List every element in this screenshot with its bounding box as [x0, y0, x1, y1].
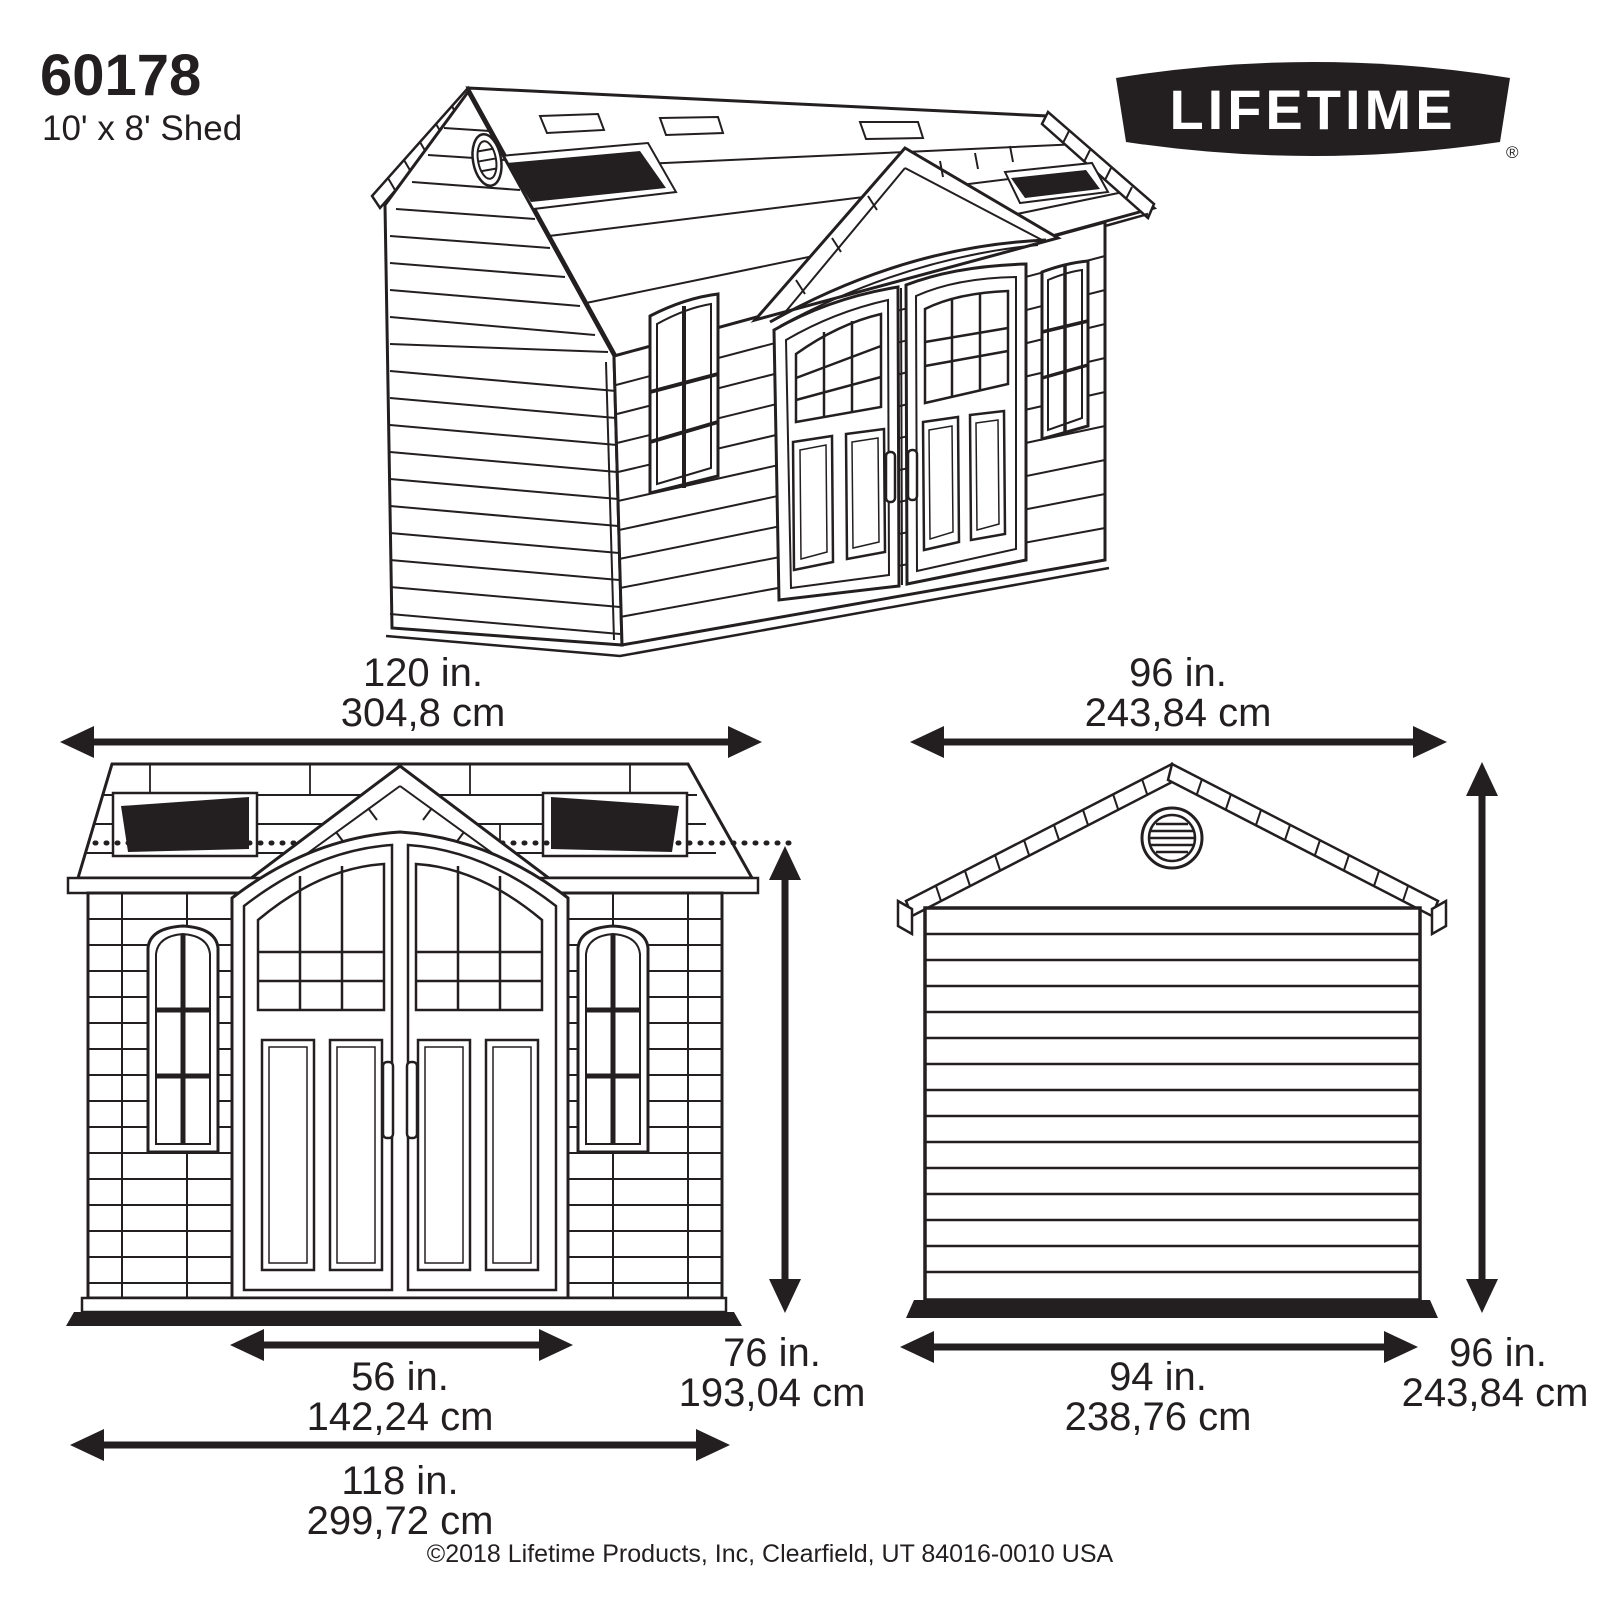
skylight-right-front [543, 793, 687, 856]
label-base-depth-in: 94 in. [1109, 1355, 1207, 1399]
label-door-width-in: 56 in. [351, 1355, 449, 1399]
skylight-left-front [113, 793, 257, 856]
door-handle-left-icon [886, 452, 895, 502]
door-handle-right-icon [908, 450, 917, 500]
part-number: 60178 [40, 43, 201, 108]
round-vent-icon [1142, 808, 1202, 868]
front-window-left-3d [650, 294, 718, 493]
label-overall-height-cm: 243,84 cm [1402, 1371, 1589, 1415]
side-elevation [898, 764, 1446, 1318]
dim-arrow-wall-height [769, 846, 801, 1313]
product-size: 10' x 8' Shed [42, 109, 242, 148]
registered-mark-icon: ® [1506, 143, 1519, 162]
lifetime-logo: LIFETIME ® [1116, 62, 1519, 162]
label-door-width-cm: 142,24 cm [307, 1395, 494, 1439]
shed-3d-view [372, 88, 1154, 656]
label-base-depth-cm: 238,76 cm [1065, 1395, 1252, 1439]
label-overall-depth-cm: 243,84 cm [1085, 691, 1272, 735]
front-window-right-3d [1042, 261, 1088, 439]
label-base-width-in: 118 in. [341, 1459, 458, 1503]
label-wall-height-cm: 193,04 cm [679, 1371, 866, 1415]
label-overall-width-cm: 304,8 cm [341, 691, 506, 735]
front-elevation [66, 764, 798, 1326]
label-overall-width-in: 120 in. [363, 651, 483, 695]
label-wall-height-in: 76 in. [723, 1331, 821, 1375]
side-window-right-front [578, 926, 648, 1152]
label-base-width-cm: 299,72 cm [307, 1499, 494, 1543]
copyright-line: ©2018 Lifetime Products, Inc, Clearfield… [427, 1540, 1114, 1568]
double-doors-front [232, 832, 568, 1298]
label-overall-depth-in: 96 in. [1129, 651, 1227, 695]
label-overall-height-in: 96 in. [1449, 1331, 1547, 1375]
door-handle-left-front-icon [383, 1062, 393, 1138]
door-handle-right-front-icon [407, 1062, 417, 1138]
dim-arrow-overall-height [1466, 762, 1498, 1313]
logo-text: LIFETIME [1169, 78, 1456, 141]
side-window-left-front [148, 926, 218, 1152]
spec-sheet: 60178 10' x 8' Shed LIFETIME ® [0, 0, 1600, 1600]
